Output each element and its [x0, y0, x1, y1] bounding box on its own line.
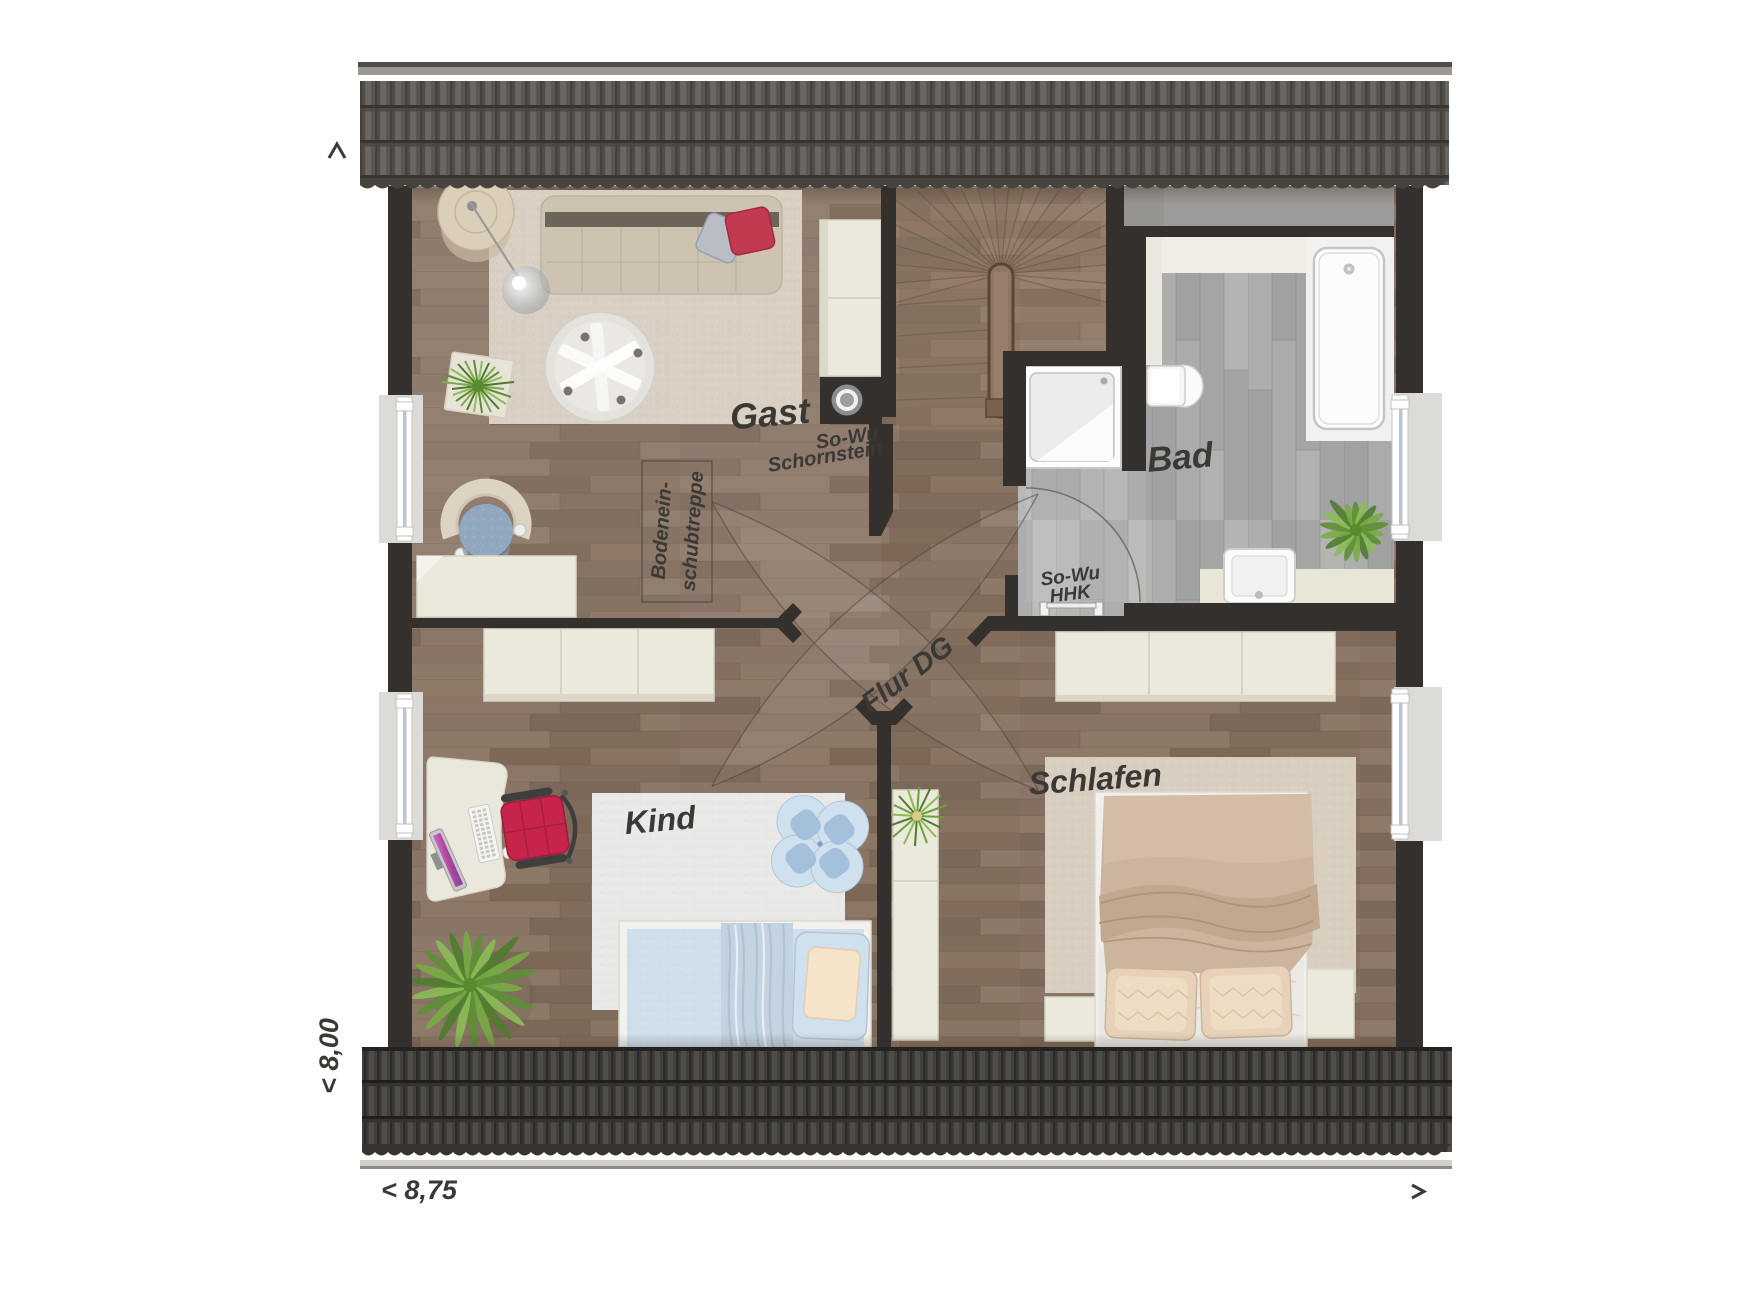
- svg-text:Kind: Kind: [623, 799, 698, 841]
- svg-text:< 8,00: < 8,00: [314, 1018, 344, 1094]
- svg-text:Gast: Gast: [728, 389, 813, 437]
- svg-text:Bad: Bad: [1145, 435, 1215, 480]
- svg-text:< 8,75: < 8,75: [381, 1175, 458, 1205]
